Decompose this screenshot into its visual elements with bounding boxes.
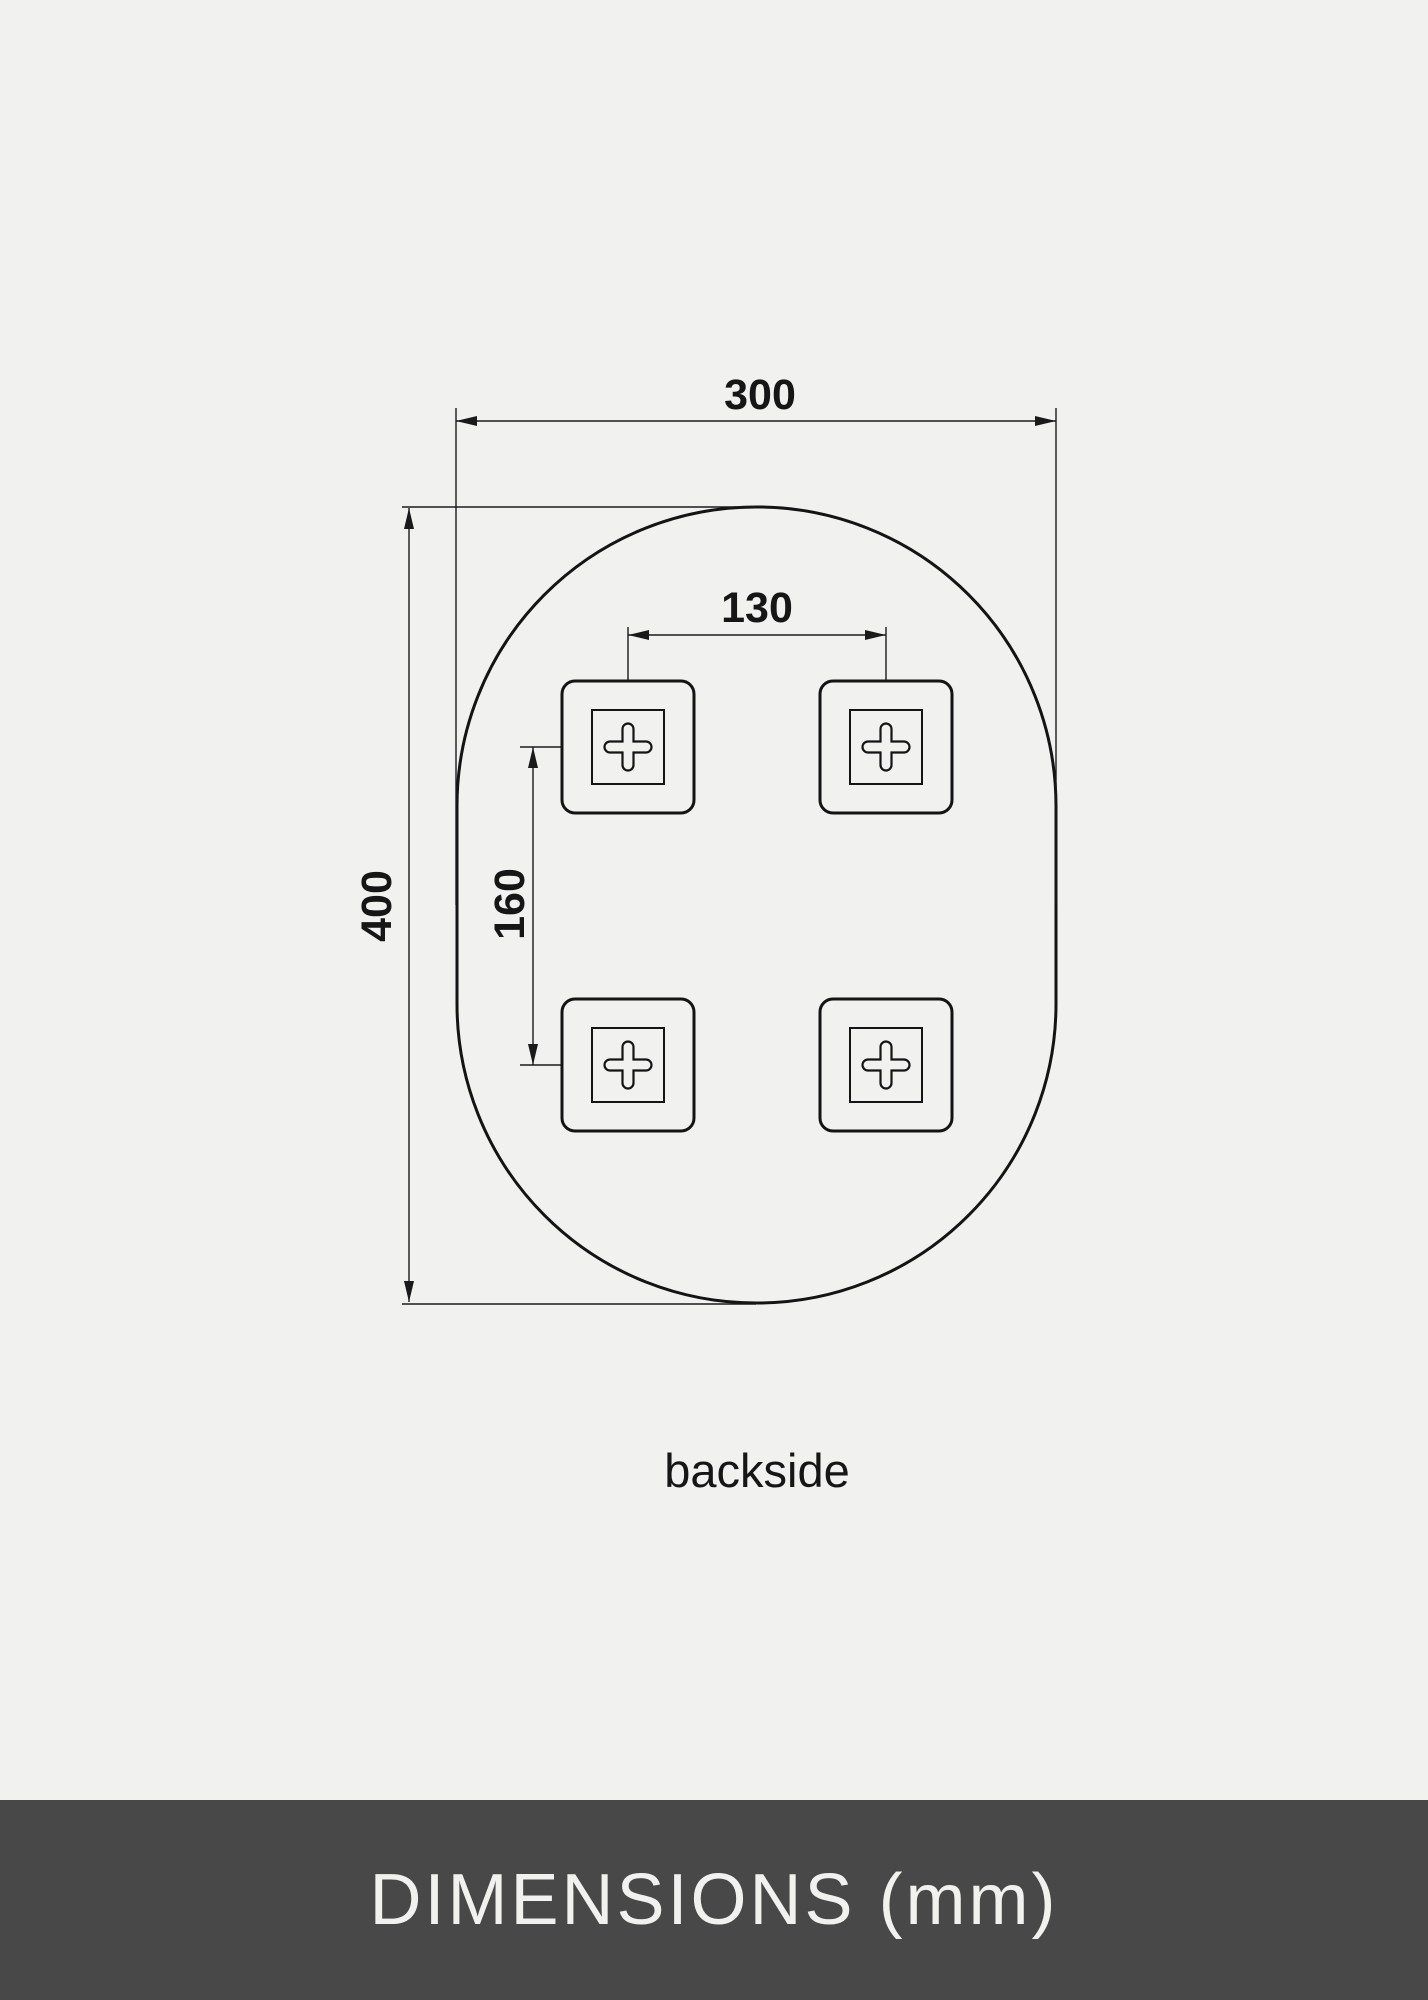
hole-spacing-vertical-label: 160: [486, 868, 534, 940]
height-dimension-label: 400: [353, 870, 401, 942]
hole-spacing-horizontal-dimension: 130: [628, 584, 886, 681]
mounting-bracket-top-right: [820, 681, 952, 813]
mounting-bracket-bottom-right: [820, 999, 952, 1131]
mounting-bracket-bottom-left: [562, 999, 694, 1131]
hole-spacing-horizontal-label: 130: [721, 584, 793, 632]
footer-title: DIMENSIONS (mm): [370, 1859, 1059, 1941]
width-dimension-label: 300: [724, 371, 796, 419]
height-dimension: 400: [353, 507, 756, 1304]
width-dimension: 300: [456, 371, 1056, 905]
hole-spacing-vertical-dimension: 160: [486, 747, 562, 1065]
mounting-bracket-top-left: [562, 681, 694, 813]
dimension-diagram: 300 400 130 160 backside: [0, 0, 1428, 1800]
view-label-backside: backside: [664, 1444, 850, 1497]
footer-banner: DIMENSIONS (mm): [0, 1800, 1428, 2000]
